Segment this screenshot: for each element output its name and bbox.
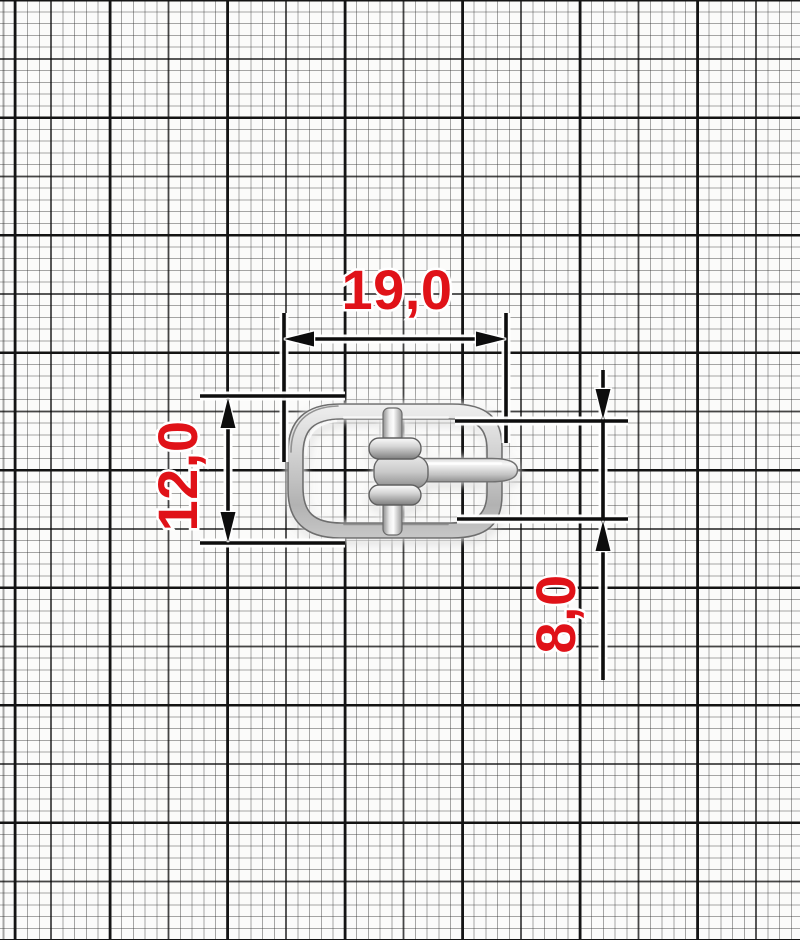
arrow-up-icon [596,521,611,551]
arrow-down-icon [596,389,611,419]
roller-bottom [369,485,421,505]
pin-hinge-barrel [374,456,428,488]
dimension-width-label: 19,0 [342,258,453,321]
drawing-canvas: 19,0 12,0 8,0 [0,0,800,940]
dimension-inner-height-label: 8,0 [524,574,587,653]
arrow-down-icon [221,512,236,542]
arrow-up-icon [221,398,236,428]
dimension-height-label: 12,0 [146,421,209,532]
roller-top [369,438,421,459]
grid-paper: 19,0 12,0 8,0 [0,0,800,940]
